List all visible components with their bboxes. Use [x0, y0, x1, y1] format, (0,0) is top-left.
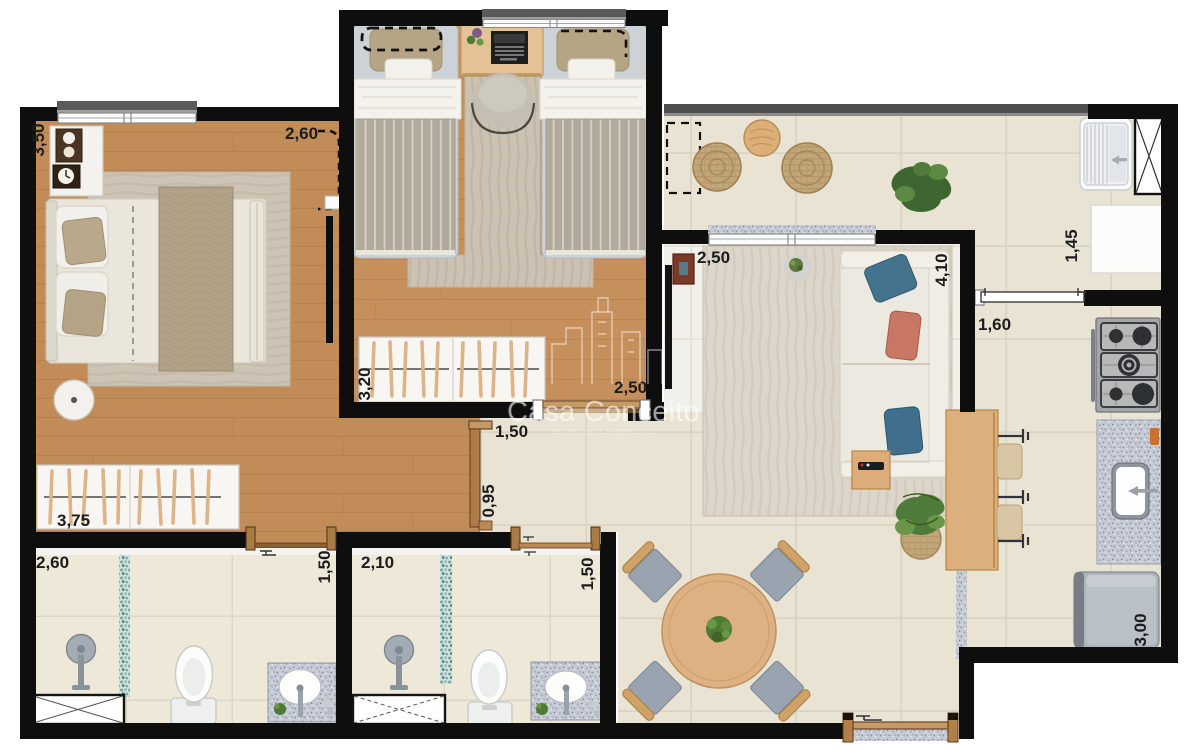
- svg-text:2,60: 2,60: [36, 553, 69, 572]
- svg-text:3,20: 3,20: [355, 367, 374, 400]
- svg-text:1,50: 1,50: [315, 550, 334, 583]
- svg-text:3,75: 3,75: [57, 511, 90, 530]
- svg-text:4,10: 4,10: [932, 253, 951, 286]
- svg-text:0,95: 0,95: [479, 484, 498, 517]
- svg-text:3,50: 3,50: [29, 123, 48, 156]
- svg-text:2,50: 2,50: [697, 248, 730, 267]
- svg-text:1,45: 1,45: [1062, 229, 1081, 262]
- svg-text:ASSESSORIA IMOBILIARIA: ASSESSORIA IMOBILIARIA: [552, 430, 656, 437]
- svg-text:1,50: 1,50: [578, 557, 597, 590]
- svg-text:2,50: 2,50: [614, 378, 647, 397]
- svg-text:2,10: 2,10: [361, 553, 394, 572]
- svg-text:Casa Conceito: Casa Conceito: [507, 396, 700, 428]
- svg-text:1,60: 1,60: [978, 315, 1011, 334]
- svg-text:2,60: 2,60: [285, 124, 318, 143]
- svg-text:3,00: 3,00: [1131, 613, 1150, 646]
